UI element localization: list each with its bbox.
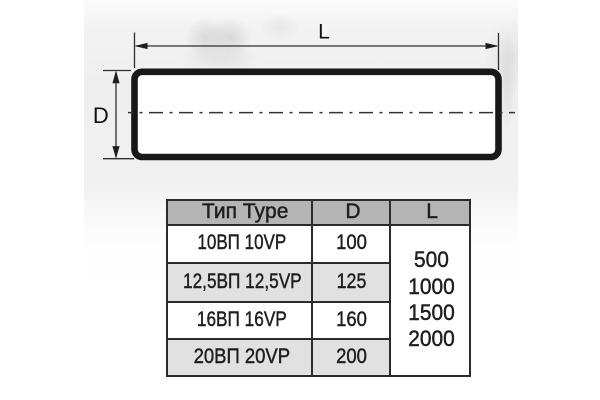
svg-text:D: D [93,103,109,128]
svg-text:L: L [318,21,330,44]
